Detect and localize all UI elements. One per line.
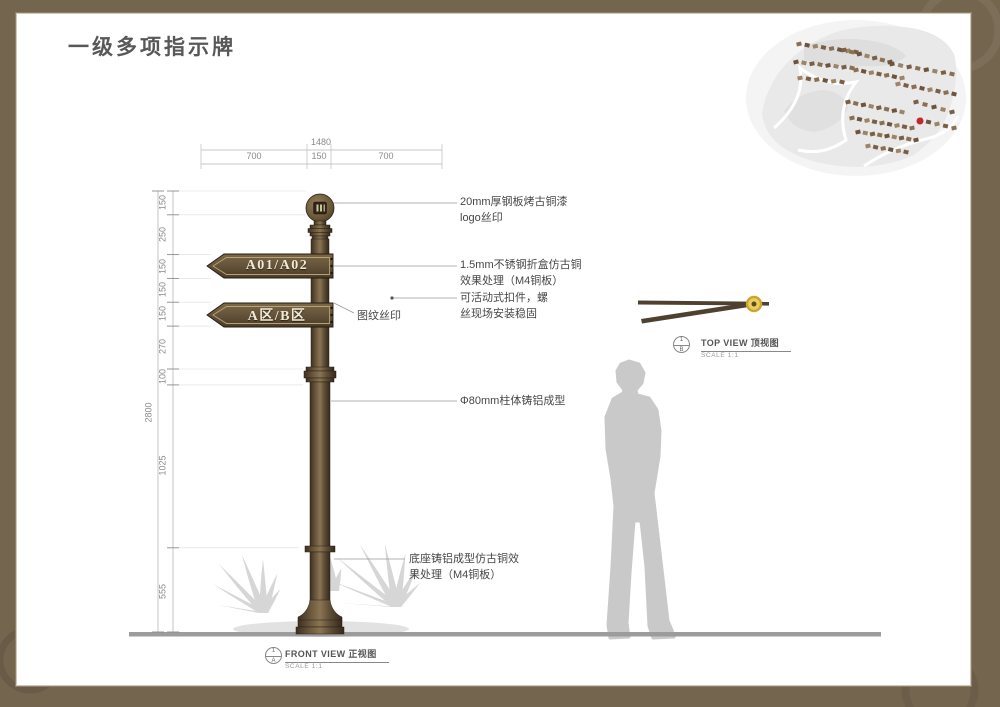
dim-top-seg-2: 150 xyxy=(289,151,349,162)
front-view-ref-bubble: 1A xyxy=(265,647,282,664)
dim-left-overall: 2800 xyxy=(144,378,155,448)
dim-left-seg-8: 1025 xyxy=(158,444,169,488)
front-view-title: FRONT VIEW 正视图 xyxy=(285,649,389,663)
front-view-scale: SCALE 1:1 xyxy=(285,663,323,671)
leader-dot xyxy=(390,296,393,299)
extension-lines xyxy=(179,191,306,548)
dim-top-overall: 1480 xyxy=(291,137,351,148)
leader-lines xyxy=(331,203,457,559)
top-view-title: TOP VIEW 顶视图 xyxy=(701,338,791,352)
annotation-base: 底座铸铝成型仿古铜效 果处理（M4铜板） xyxy=(409,552,519,583)
decorative-frame: 一级多项指示牌 xyxy=(0,0,1000,707)
dim-top-seg-3: 700 xyxy=(356,151,416,162)
top-view-scale: SCALE 1:1 xyxy=(701,352,739,360)
annotation-logo: 20mm厚钢板烤古铜漆 logo丝印 xyxy=(460,195,568,226)
pole-base-flare xyxy=(298,600,342,621)
annotation-pole: Φ80mm柱体铸铝成型 xyxy=(460,394,565,410)
annotation-clamp: 可活动式扣件，螺 丝现场安装稳固 xyxy=(460,291,548,322)
human-silhouette xyxy=(606,361,674,638)
top-view-ref-bubble: 1B xyxy=(673,336,690,353)
dim-left-seg-9: 555 xyxy=(158,570,169,614)
panel-top-label: A01/A02 xyxy=(225,255,329,277)
ground-line xyxy=(129,632,881,637)
pole-mid-collar xyxy=(304,371,336,378)
pole-lower-shaft xyxy=(310,382,330,548)
panel-bottom-label: A区/B区 xyxy=(225,304,329,326)
top-view-drawing xyxy=(638,297,769,324)
front-view-drawing xyxy=(1,1,1000,707)
pole-base-plinth xyxy=(296,627,344,634)
dim-left-seg-7: 100 xyxy=(158,355,169,399)
drawing-sheet: 一级多项指示牌 xyxy=(15,12,972,687)
annotation-panel: 1.5mm不锈钢折盒仿古铜 效果处理（M4铜板） xyxy=(460,258,582,289)
dim-top-seg-1: 700 xyxy=(224,151,284,162)
annotation-pattern: 图纹丝印 xyxy=(357,309,401,325)
